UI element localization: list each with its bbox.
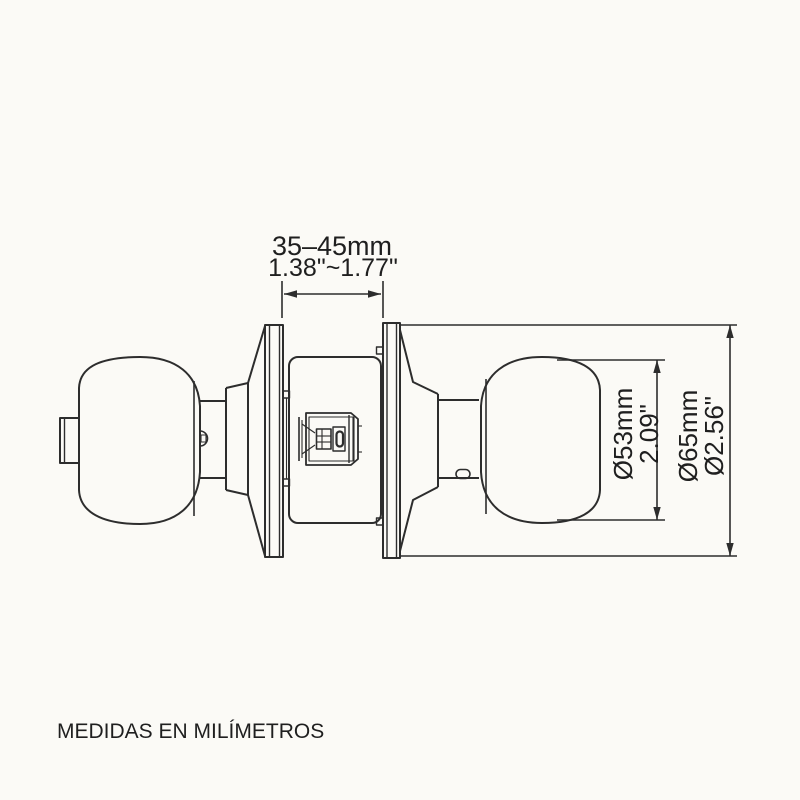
key-cylinder-stub bbox=[60, 418, 79, 463]
left-knob bbox=[79, 357, 200, 524]
right-neck bbox=[438, 400, 479, 479]
door-thickness-inch-label: 1.38"~1.77" bbox=[268, 254, 398, 282]
latch-assembly bbox=[299, 413, 362, 465]
units-note: MEDIDAS EN MILÍMETROS bbox=[57, 721, 324, 742]
dimension-knob-diameter: Ø53mm 2.09" bbox=[557, 360, 665, 520]
right-rose-cone bbox=[400, 330, 438, 551]
lockset-drawing bbox=[60, 323, 600, 558]
left-neck bbox=[200, 401, 226, 478]
chassis-body bbox=[289, 357, 381, 523]
door-knob-technical-diagram: 35–45mm 1.38"~1.77" Ø53mm 2.09" Ø65mm Ø2… bbox=[0, 0, 800, 800]
left-rose-plate bbox=[265, 325, 283, 557]
rose-diameter-inch-label: Ø2.56" bbox=[699, 396, 729, 476]
left-rose-cone bbox=[226, 326, 265, 556]
knob-diameter-inch-label: 2.09" bbox=[634, 404, 664, 464]
dimension-door-thickness: 35–45mm 1.38"~1.77" bbox=[268, 231, 398, 318]
neck-button-pin bbox=[200, 431, 208, 446]
right-knob bbox=[481, 357, 600, 523]
